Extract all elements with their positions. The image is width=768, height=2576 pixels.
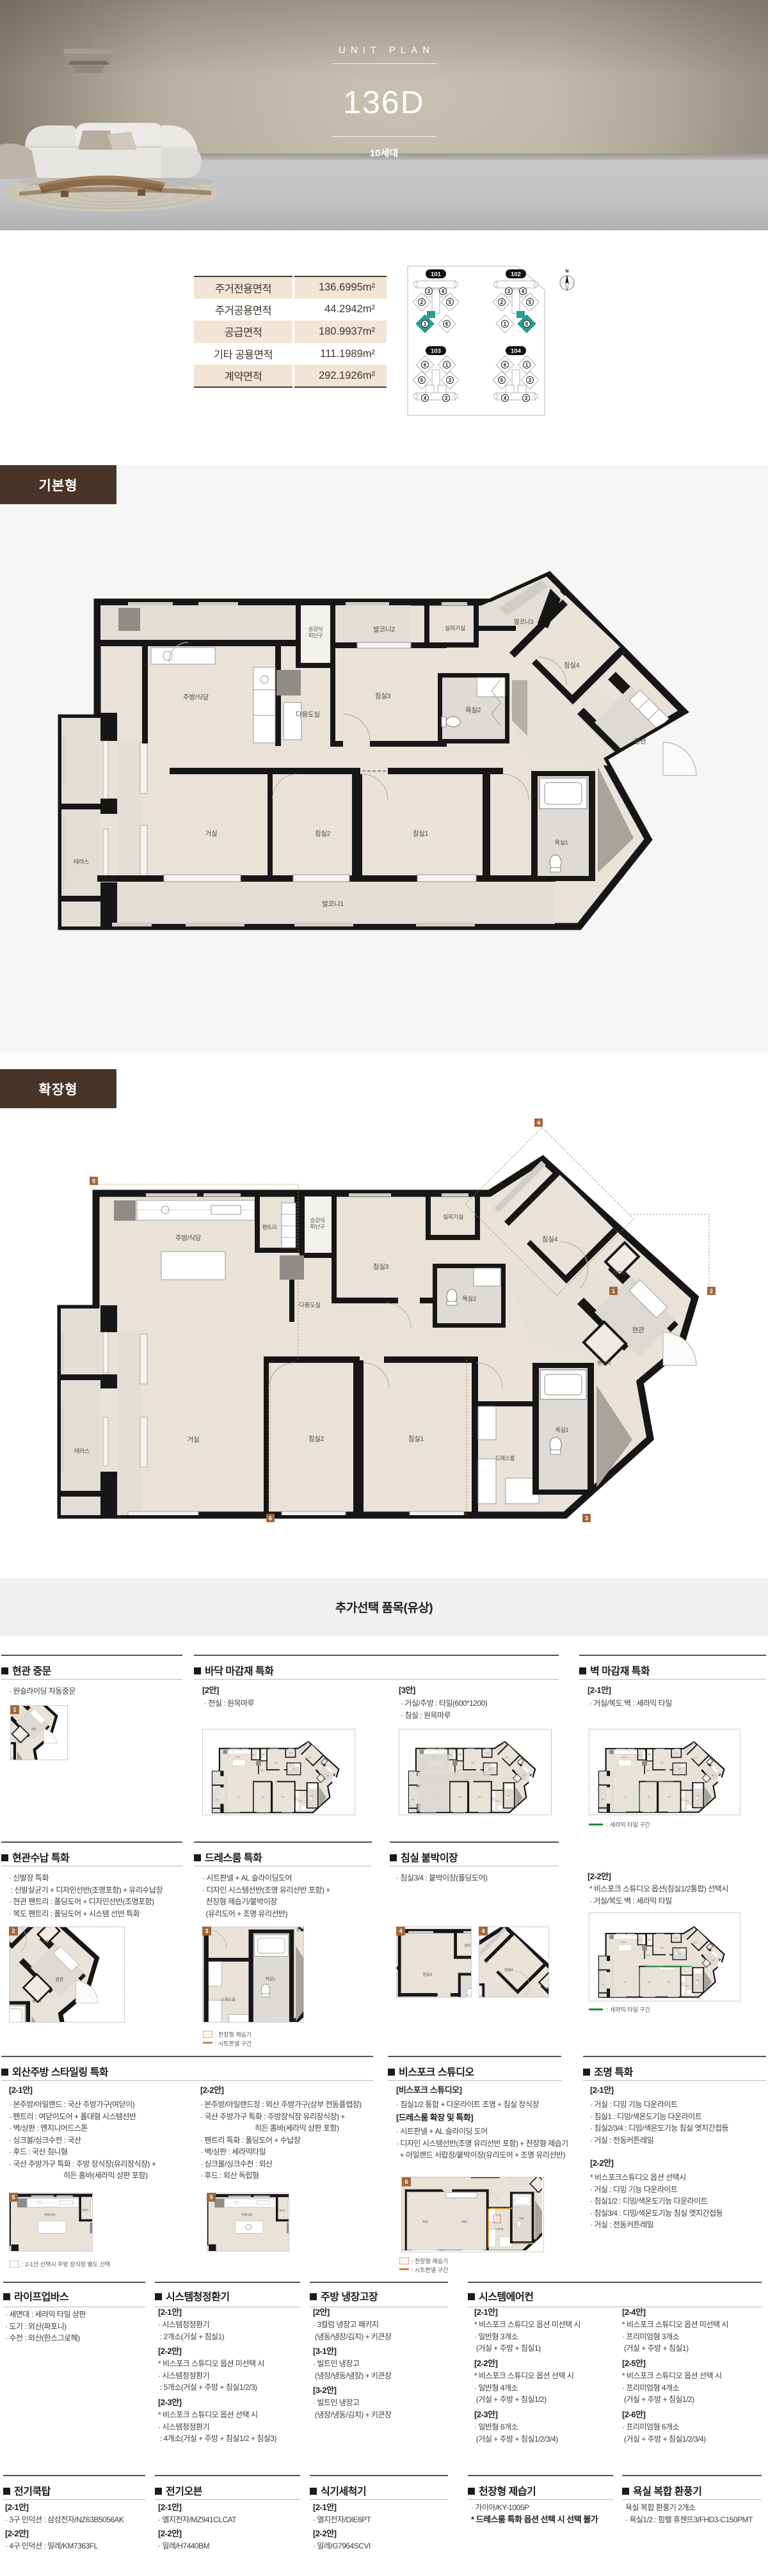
svg-text:현관: 현관 xyxy=(634,738,646,745)
svg-text:101: 101 xyxy=(431,271,442,278)
svg-text:침실1: 침실1 xyxy=(413,830,429,838)
svg-text:1: 1 xyxy=(612,1288,615,1294)
svg-text:실외기실: 실외기실 xyxy=(443,1213,463,1220)
svg-text:팬트리: 팬트리 xyxy=(597,1360,611,1366)
svg-text:주방/식당: 주방/식당 xyxy=(183,694,209,701)
svg-text:발코니1: 발코니1 xyxy=(322,900,344,908)
svg-text:승강식: 승강식 xyxy=(310,1217,325,1223)
svg-text:4: 4 xyxy=(537,1120,540,1126)
svg-text:드레스룸: 드레스룸 xyxy=(495,1455,515,1461)
svg-text:거실: 거실 xyxy=(188,1436,200,1443)
svg-text:현관: 현관 xyxy=(632,1326,644,1334)
svg-text:102: 102 xyxy=(511,271,521,278)
svg-text:발코니2: 발코니2 xyxy=(373,626,395,633)
svg-text:5: 5 xyxy=(92,1178,95,1184)
svg-text:욕실2: 욕실2 xyxy=(462,1296,476,1303)
svg-text:103: 103 xyxy=(431,347,441,354)
svg-text:욕실2: 욕실2 xyxy=(465,706,481,714)
svg-text:침실3: 침실3 xyxy=(375,692,391,700)
svg-text:주방/식당: 주방/식당 xyxy=(175,1234,202,1242)
svg-text:피난구: 피난구 xyxy=(310,1223,325,1230)
svg-text:침실2: 침실2 xyxy=(308,1435,324,1443)
svg-text:104: 104 xyxy=(511,347,522,354)
svg-text:다용도실: 다용도실 xyxy=(296,711,319,719)
svg-text:3: 3 xyxy=(585,1515,588,1522)
svg-text:실외기실: 실외기실 xyxy=(445,624,465,632)
svg-text:침실2: 침실2 xyxy=(315,830,331,838)
svg-text:테라스: 테라스 xyxy=(74,1448,90,1454)
svg-text:욕실1: 욕실1 xyxy=(555,839,568,846)
svg-text:팬트리: 팬트리 xyxy=(612,1270,626,1276)
svg-text:2: 2 xyxy=(710,1288,713,1294)
svg-text:팬트리: 팬트리 xyxy=(262,1224,277,1230)
svg-text:N: N xyxy=(565,269,568,274)
svg-text:6: 6 xyxy=(269,1515,272,1522)
svg-text:침실4: 침실4 xyxy=(542,1236,558,1243)
svg-text:다용도실: 다용도실 xyxy=(299,1302,321,1309)
svg-text:발코니3: 발코니3 xyxy=(514,619,533,626)
svg-text:침실1: 침실1 xyxy=(408,1435,424,1443)
svg-text:욕실1: 욕실1 xyxy=(556,1427,569,1433)
svg-text:피난구: 피난구 xyxy=(308,632,323,639)
svg-text:침실3: 침실3 xyxy=(373,1263,389,1271)
svg-text:거실: 거실 xyxy=(205,830,218,838)
svg-text:침실4: 침실4 xyxy=(564,662,580,669)
svg-text:테라스: 테라스 xyxy=(74,859,89,865)
svg-text:승강식: 승강식 xyxy=(308,626,323,632)
